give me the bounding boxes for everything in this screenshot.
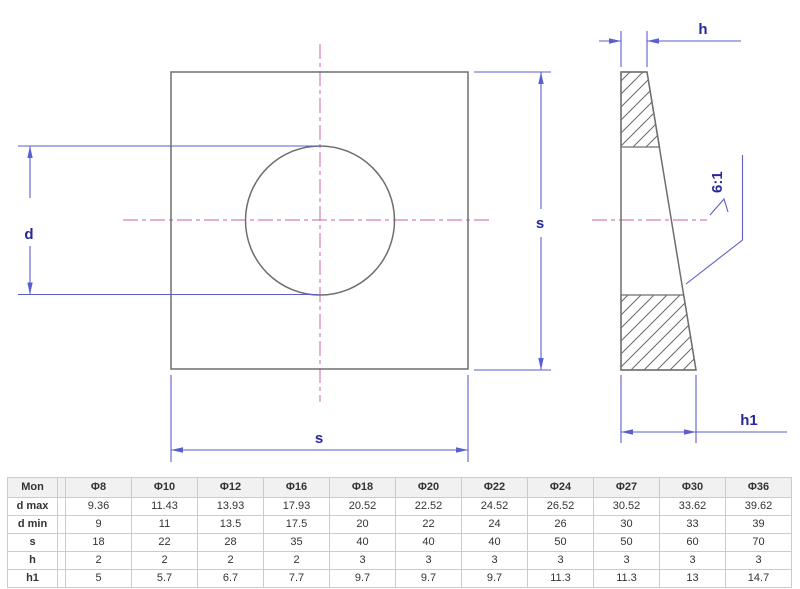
value-cell: 9.7 bbox=[396, 570, 462, 588]
value-cell: 11.43 bbox=[132, 498, 198, 516]
value-cell: 11.3 bbox=[528, 570, 594, 588]
value-cell: 3 bbox=[726, 552, 792, 570]
arrowhead-icon bbox=[171, 447, 183, 452]
value-cell: 24 bbox=[462, 516, 528, 534]
dimension-s-right: s bbox=[474, 72, 551, 370]
value-cell: 9.36 bbox=[66, 498, 132, 516]
col-header-size: Φ20 bbox=[396, 478, 462, 498]
value-cell: 26 bbox=[528, 516, 594, 534]
value-cell: 11 bbox=[132, 516, 198, 534]
label-s-bottom: s bbox=[315, 430, 323, 447]
dimension-h: h bbox=[599, 21, 741, 67]
arrowhead-icon bbox=[456, 447, 468, 452]
value-cell: 5 bbox=[66, 570, 132, 588]
side-view bbox=[592, 72, 707, 370]
value-cell: 30.52 bbox=[594, 498, 660, 516]
value-cell: 9.7 bbox=[462, 570, 528, 588]
value-cell: 28 bbox=[198, 534, 264, 552]
arrowhead-icon bbox=[27, 283, 32, 295]
spacer-cell bbox=[58, 516, 66, 534]
col-header-size: Φ8 bbox=[66, 478, 132, 498]
value-cell: 3 bbox=[462, 552, 528, 570]
label-h: h bbox=[698, 21, 707, 38]
table-row: d min91113.517.520222426303339 bbox=[8, 516, 792, 534]
value-cell: 33.62 bbox=[660, 498, 726, 516]
value-cell: 18 bbox=[66, 534, 132, 552]
value-cell: 33 bbox=[660, 516, 726, 534]
value-cell: 14.7 bbox=[726, 570, 792, 588]
arrowhead-icon bbox=[684, 429, 696, 434]
col-header-size: Φ16 bbox=[264, 478, 330, 498]
value-cell: 17.93 bbox=[264, 498, 330, 516]
col-header-label: Mon bbox=[8, 478, 58, 498]
value-cell: 11.3 bbox=[594, 570, 660, 588]
arrowhead-icon bbox=[538, 72, 543, 84]
col-header-size: Φ22 bbox=[462, 478, 528, 498]
value-cell: 22.52 bbox=[396, 498, 462, 516]
value-cell: 40 bbox=[330, 534, 396, 552]
value-cell: 40 bbox=[462, 534, 528, 552]
label-h1: h1 bbox=[740, 412, 758, 429]
spacer-cell bbox=[58, 552, 66, 570]
value-cell: 2 bbox=[198, 552, 264, 570]
value-cell: 3 bbox=[528, 552, 594, 570]
arrowhead-icon bbox=[647, 38, 659, 43]
value-cell: 2 bbox=[264, 552, 330, 570]
value-cell: 5.7 bbox=[132, 570, 198, 588]
spec-table-head-row: MonΦ8Φ10Φ12Φ16Φ18Φ20Φ22Φ24Φ27Φ30Φ36 bbox=[8, 478, 792, 498]
value-cell: 3 bbox=[330, 552, 396, 570]
engineering-drawing: d s s h bbox=[0, 0, 800, 477]
table-row: h155.76.77.79.79.79.711.311.31314.7 bbox=[8, 570, 792, 588]
col-header-size: Φ36 bbox=[726, 478, 792, 498]
value-cell: 7.7 bbox=[264, 570, 330, 588]
section-hatch-bottom bbox=[621, 295, 696, 370]
value-cell: 40 bbox=[396, 534, 462, 552]
value-cell: 9 bbox=[66, 516, 132, 534]
slope-symbol-icon bbox=[710, 199, 728, 215]
value-cell: 39.62 bbox=[726, 498, 792, 516]
arrowhead-icon bbox=[621, 429, 633, 434]
row-header: d min bbox=[8, 516, 58, 534]
value-cell: 6.7 bbox=[198, 570, 264, 588]
table-row: d max9.3611.4313.9317.9320.5222.5224.522… bbox=[8, 498, 792, 516]
value-cell: 22 bbox=[132, 534, 198, 552]
spacer-cell bbox=[58, 570, 66, 588]
spacer-cell bbox=[58, 498, 66, 516]
value-cell: 35 bbox=[264, 534, 330, 552]
value-cell: 24.52 bbox=[462, 498, 528, 516]
value-cell: 22 bbox=[396, 516, 462, 534]
dimension-h1: h1 bbox=[621, 375, 787, 443]
spec-table-body: d max9.3611.4313.9317.9320.5222.5224.522… bbox=[8, 498, 792, 588]
spec-table: MonΦ8Φ10Φ12Φ16Φ18Φ20Φ22Φ24Φ27Φ30Φ36 d ma… bbox=[7, 477, 792, 588]
col-header-size: Φ24 bbox=[528, 478, 594, 498]
spacer-column bbox=[58, 478, 66, 498]
value-cell: 20 bbox=[330, 516, 396, 534]
arrowhead-icon bbox=[609, 38, 621, 43]
row-header: s bbox=[8, 534, 58, 552]
value-cell: 3 bbox=[594, 552, 660, 570]
arrowhead-icon bbox=[27, 146, 32, 158]
col-header-size: Φ30 bbox=[660, 478, 726, 498]
value-cell: 13.93 bbox=[198, 498, 264, 516]
section-hatch-top bbox=[621, 72, 660, 147]
value-cell: 30 bbox=[594, 516, 660, 534]
front-view bbox=[123, 44, 492, 402]
table-row: h22223333333 bbox=[8, 552, 792, 570]
value-cell: 17.5 bbox=[264, 516, 330, 534]
row-header: h bbox=[8, 552, 58, 570]
value-cell: 2 bbox=[66, 552, 132, 570]
arrowhead-icon bbox=[538, 358, 543, 370]
value-cell: 70 bbox=[726, 534, 792, 552]
value-cell: 20.52 bbox=[330, 498, 396, 516]
col-header-size: Φ12 bbox=[198, 478, 264, 498]
table-row: s1822283540404050506070 bbox=[8, 534, 792, 552]
value-cell: 3 bbox=[660, 552, 726, 570]
value-cell: 26.52 bbox=[528, 498, 594, 516]
col-header-size: Φ18 bbox=[330, 478, 396, 498]
value-cell: 60 bbox=[660, 534, 726, 552]
value-cell: 2 bbox=[132, 552, 198, 570]
col-header-size: Φ10 bbox=[132, 478, 198, 498]
col-header-size: Φ27 bbox=[594, 478, 660, 498]
label-d: d bbox=[24, 226, 33, 243]
value-cell: 3 bbox=[396, 552, 462, 570]
row-header: d max bbox=[8, 498, 58, 516]
value-cell: 39 bbox=[726, 516, 792, 534]
value-cell: 9.7 bbox=[330, 570, 396, 588]
value-cell: 50 bbox=[594, 534, 660, 552]
row-header: h1 bbox=[8, 570, 58, 588]
label-s-right: s bbox=[536, 215, 544, 232]
value-cell: 13.5 bbox=[198, 516, 264, 534]
spacer-cell bbox=[58, 534, 66, 552]
value-cell: 50 bbox=[528, 534, 594, 552]
label-taper-ratio: 6:1 bbox=[709, 171, 726, 193]
value-cell: 13 bbox=[660, 570, 726, 588]
